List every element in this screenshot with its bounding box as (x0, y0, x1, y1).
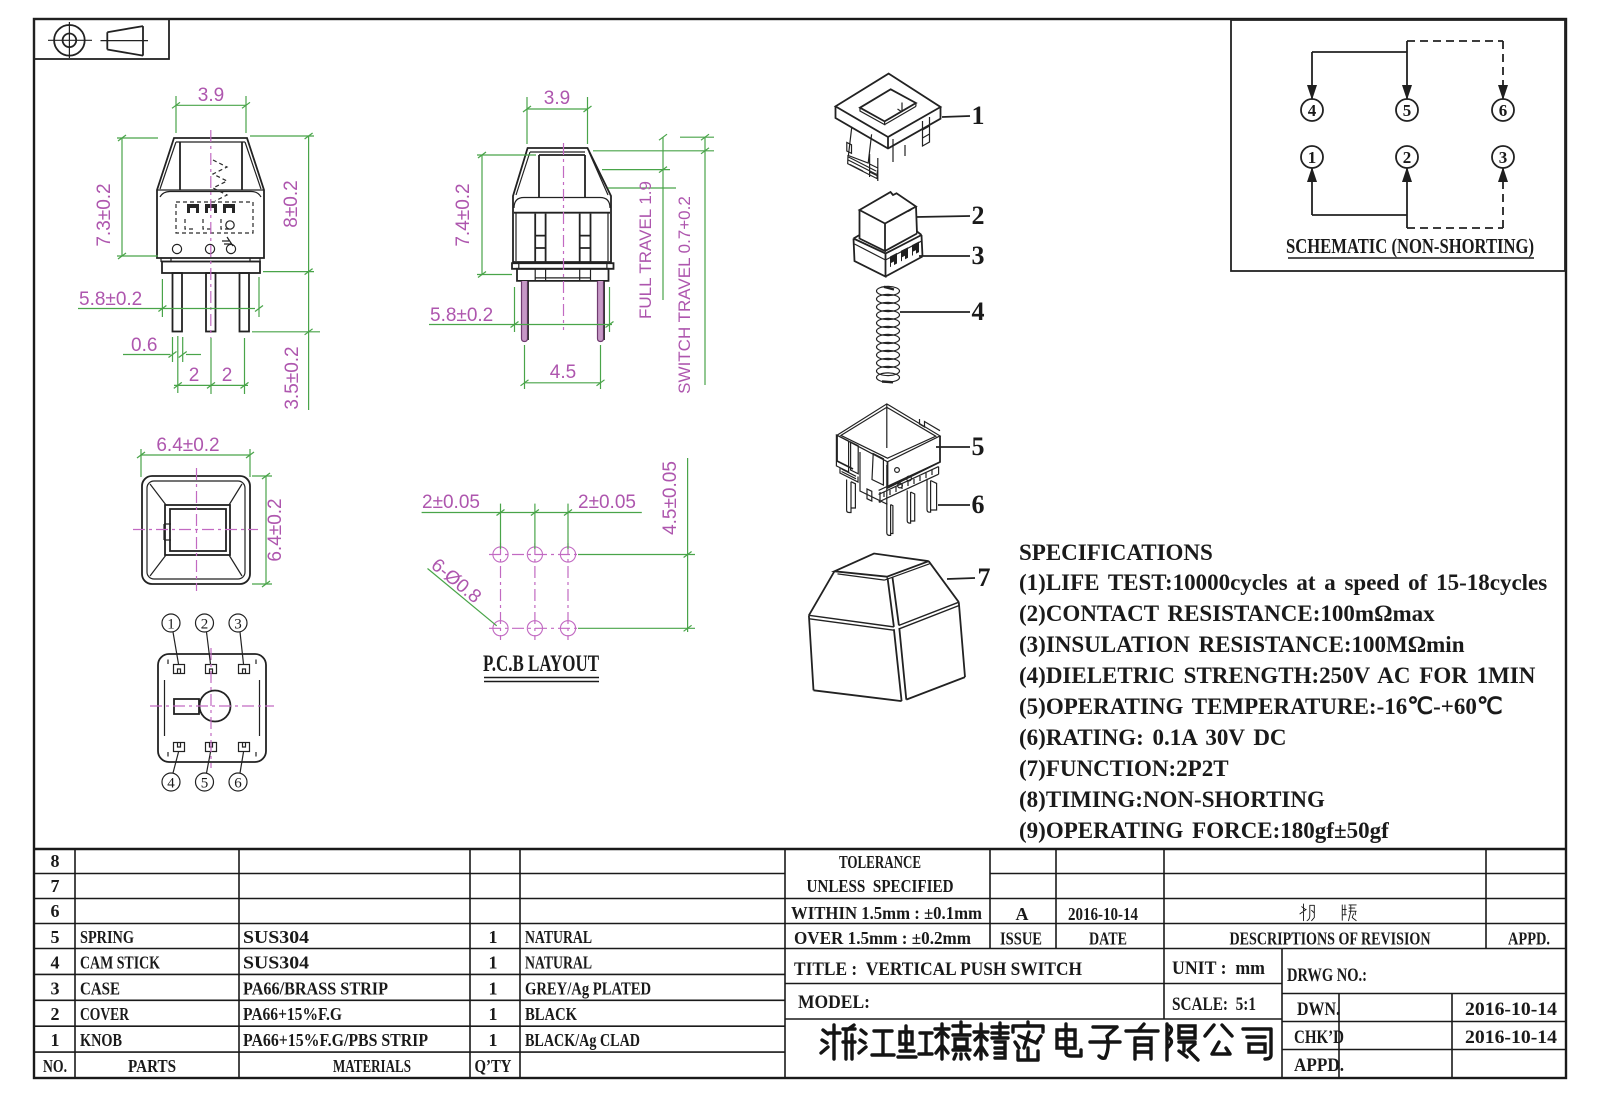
svg-text:COVER: COVER (80, 1004, 130, 1024)
svg-text:DATE: DATE (1089, 929, 1127, 949)
svg-text:ISSUE: ISSUE (1000, 929, 1042, 949)
svg-text:2: 2 (222, 365, 233, 386)
svg-text:3: 3 (972, 241, 985, 270)
svg-text:DESCRIPTIONS OF REVISION: DESCRIPTIONS OF REVISION (1230, 929, 1431, 949)
svg-text:APPD.: APPD. (1508, 929, 1550, 949)
svg-text:5: 5 (201, 776, 209, 792)
svg-text:1: 1 (972, 101, 985, 130)
svg-text:4.5: 4.5 (550, 362, 576, 383)
svg-text:6: 6 (1499, 101, 1508, 120)
svg-text:FULL TRAVEL 1.9: FULL TRAVEL 1.9 (636, 181, 655, 319)
svg-text:4: 4 (972, 297, 985, 326)
svg-text:PA66+15%F.G/PBS STRIP: PA66+15%F.G/PBS STRIP (243, 1030, 428, 1050)
svg-text:SWITCH TRAVEL 0.7+0.2: SWITCH TRAVEL 0.7+0.2 (675, 196, 694, 394)
svg-text:2: 2 (51, 1004, 60, 1024)
svg-text:1: 1 (51, 1030, 60, 1050)
svg-text:1: 1 (1308, 148, 1317, 167)
svg-text:DRWG NO.:: DRWG NO.: (1287, 965, 1367, 986)
svg-text:2±0.05: 2±0.05 (578, 492, 636, 513)
svg-text:3.5±0.2: 3.5±0.2 (282, 346, 303, 409)
svg-text:PA66+15%F.G: PA66+15%F.G (243, 1004, 342, 1024)
svg-text:(3)INSULATION RESISTANCE:100MΩ: (3)INSULATION RESISTANCE:100MΩmin (1019, 632, 1465, 657)
svg-text:(5)OPERATING TEMPERATURE:-16℃-: (5)OPERATING TEMPERATURE:-16℃-+60℃ (1019, 694, 1503, 719)
svg-text:BLACK: BLACK (525, 1004, 577, 1024)
svg-text:CHK’D: CHK’D (1294, 1027, 1344, 1048)
svg-text:MATERIALS: MATERIALS (333, 1056, 411, 1076)
svg-text:7.3±0.2: 7.3±0.2 (94, 183, 115, 246)
svg-text:(9)OPERATING FORCE:180gf±50gf: (9)OPERATING FORCE:180gf±50gf (1019, 818, 1389, 843)
svg-text:UNLESS SPECIFIED: UNLESS SPECIFIED (807, 876, 954, 896)
svg-text:2016-10-14: 2016-10-14 (1465, 1027, 1558, 1048)
svg-text:SPECIFICATIONS: SPECIFICATIONS (1019, 540, 1213, 565)
svg-text:NO.: NO. (43, 1056, 67, 1076)
svg-text:1: 1 (489, 978, 498, 998)
svg-text:6: 6 (51, 901, 60, 921)
svg-text:P.C.B LAYOUT: P.C.B LAYOUT (483, 651, 599, 676)
svg-text:SUS304: SUS304 (243, 953, 309, 973)
svg-text:CAM STICK: CAM STICK (80, 953, 160, 973)
svg-text:A: A (1016, 904, 1029, 924)
svg-text:PARTS: PARTS (128, 1056, 176, 1076)
svg-text:1: 1 (489, 1004, 498, 1024)
svg-text:NATURAL: NATURAL (525, 953, 592, 973)
svg-text:BLACK/Ag CLAD: BLACK/Ag CLAD (525, 1030, 640, 1050)
svg-text:TITLE : VERTICAL PUSH SWITCH: TITLE : VERTICAL PUSH SWITCH (794, 959, 1082, 980)
svg-text:7.4±0.2: 7.4±0.2 (453, 183, 474, 246)
svg-text:2±0.05: 2±0.05 (422, 492, 480, 513)
svg-text:MODEL:: MODEL: (798, 992, 870, 1013)
svg-text:PA66/BRASS STRIP: PA66/BRASS STRIP (243, 978, 388, 998)
svg-text:2: 2 (201, 617, 209, 633)
svg-text:SUS304: SUS304 (243, 927, 309, 947)
svg-text:NATURAL: NATURAL (525, 927, 592, 947)
svg-text:2: 2 (189, 365, 200, 386)
svg-text:SCALE: 5:1: SCALE: 5:1 (1172, 994, 1256, 1015)
svg-text:4.5±0.05: 4.5±0.05 (660, 461, 681, 535)
svg-text:3: 3 (234, 617, 242, 633)
svg-text:CASE: CASE (80, 978, 120, 998)
svg-text:7: 7 (978, 563, 991, 592)
svg-text:OVER 1.5mm : ±0.2mm: OVER 1.5mm : ±0.2mm (794, 928, 971, 948)
svg-text:GREY/Ag PLATED: GREY/Ag PLATED (525, 978, 651, 998)
svg-text:5: 5 (1403, 101, 1412, 120)
svg-text:4: 4 (1308, 101, 1317, 120)
svg-text:1: 1 (167, 617, 175, 633)
svg-text:2016-10-14: 2016-10-14 (1068, 904, 1138, 924)
svg-text:8±0.2: 8±0.2 (281, 180, 302, 227)
svg-text:3.9: 3.9 (198, 85, 224, 106)
svg-text:2016-10-14: 2016-10-14 (1465, 999, 1558, 1020)
svg-text:2: 2 (1403, 148, 1412, 167)
svg-text:5: 5 (972, 432, 985, 461)
svg-text:(2)CONTACT RESISTANCE:100mΩmax: (2)CONTACT RESISTANCE:100mΩmax (1019, 601, 1435, 626)
svg-text:1: 1 (489, 927, 498, 947)
svg-text:2: 2 (972, 201, 985, 230)
svg-text:7: 7 (51, 876, 60, 896)
svg-text:WITHIN 1.5mm : ±0.1mm: WITHIN 1.5mm : ±0.1mm (791, 903, 982, 923)
svg-text:6: 6 (972, 490, 985, 519)
svg-text:4: 4 (51, 953, 60, 973)
svg-text:5.8±0.2: 5.8±0.2 (430, 305, 493, 326)
svg-text:UNIT : mm: UNIT : mm (1172, 958, 1265, 979)
svg-text:5: 5 (51, 927, 60, 947)
svg-text:3: 3 (1499, 148, 1508, 167)
svg-text:8: 8 (51, 851, 60, 871)
svg-text:5.8±0.2: 5.8±0.2 (79, 289, 142, 310)
svg-text:(7)FUNCTION:2P2T: (7)FUNCTION:2P2T (1019, 756, 1229, 781)
svg-text:SCHEMATIC (NON-SHORTING): SCHEMATIC (NON-SHORTING) (1286, 234, 1534, 258)
svg-text:(4)DIELETRIC STRENGTH:250V AC: (4)DIELETRIC STRENGTH:250V AC FOR 1MIN (1019, 663, 1536, 688)
svg-text:4: 4 (167, 776, 175, 792)
svg-text:SPRING: SPRING (80, 927, 134, 947)
svg-text:6.4±0.2: 6.4±0.2 (265, 498, 286, 561)
svg-text:0.6: 0.6 (131, 335, 157, 356)
svg-text:6.4±0.2: 6.4±0.2 (156, 435, 219, 456)
svg-text:1: 1 (489, 1030, 498, 1050)
svg-text:DWN.: DWN. (1297, 999, 1340, 1020)
svg-text:APPD.: APPD. (1294, 1055, 1344, 1076)
svg-text:6: 6 (234, 776, 242, 792)
svg-text:(8)TIMING:NON-SHORTING: (8)TIMING:NON-SHORTING (1019, 787, 1325, 812)
svg-text:1: 1 (489, 953, 498, 973)
svg-text:Q’TY: Q’TY (475, 1056, 512, 1076)
svg-text:3.9: 3.9 (544, 88, 570, 109)
svg-text:3: 3 (51, 978, 60, 998)
svg-text:(1)LIFE TEST:10000cycles at a: (1)LIFE TEST:10000cycles at a speed of 1… (1019, 570, 1547, 595)
svg-text:(6)RATING: 0.1A 30V DC: (6)RATING: 0.1A 30V DC (1019, 725, 1287, 750)
svg-text:KNOB: KNOB (80, 1030, 122, 1050)
svg-text:TOLERANCE: TOLERANCE (839, 852, 921, 872)
